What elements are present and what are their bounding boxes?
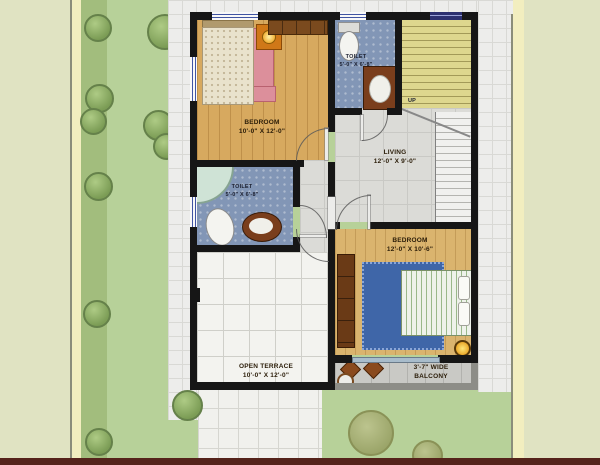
wall — [328, 162, 335, 197]
toilet2-label: TOILET 5'-0" X 6'-8" — [204, 184, 280, 200]
wall — [335, 108, 362, 115]
terrace-label: OPEN TERRACE 10'-0" X 12'-0" — [214, 362, 318, 381]
washbasin-icon — [369, 75, 391, 103]
living-name: LIVING — [345, 148, 445, 157]
balcony-name: BALCONY — [392, 372, 470, 381]
wall — [471, 12, 478, 363]
living-label: LIVING 12'-0" X 9'-0" — [345, 148, 445, 167]
terrace-name: OPEN TERRACE — [214, 362, 318, 371]
bush-icon — [84, 14, 112, 42]
bedroom1-name: BEDROOM — [210, 118, 314, 127]
patio-bottom — [198, 388, 322, 458]
door-leaf — [328, 197, 335, 229]
wall — [190, 160, 304, 167]
bush-icon — [85, 428, 113, 456]
toilet1-dims: 5'-0" X 6'-8" — [330, 62, 382, 70]
bush-icon — [83, 300, 111, 328]
bedroom1-dims: 10'-0" X 12'-0" — [210, 127, 314, 136]
window — [212, 12, 258, 20]
floor-plan-scene: BEDROOM 10'-0" X 12'-0" TOILET 5'-0" X 6… — [0, 0, 600, 465]
toilet1-label: TOILET 5'-0" X 6'-8" — [330, 54, 382, 70]
toilet2-dims: 5'-0" X 6'-8" — [204, 192, 280, 200]
balcony-parapet — [471, 363, 478, 390]
wall — [328, 355, 352, 363]
bedroom2-name: BEDROOM — [358, 236, 462, 245]
wall — [395, 12, 402, 115]
pillow — [458, 276, 470, 300]
toilet1-name: TOILET — [330, 54, 382, 62]
wall — [328, 229, 335, 390]
stairs-up-label: UP — [402, 98, 422, 106]
balcony-parapet — [335, 383, 478, 390]
bush-icon — [84, 172, 113, 201]
window — [430, 12, 462, 20]
wall — [190, 245, 300, 252]
wall — [438, 355, 478, 363]
wall — [293, 167, 300, 207]
bedroom1-label: BEDROOM 10'-0" X 12'-0" — [210, 118, 314, 137]
wardrobe — [268, 20, 328, 35]
wall — [190, 382, 335, 390]
washbasin-icon — [249, 218, 273, 234]
bedroom2-label: BEDROOM 12'-0" X 10'-6" — [358, 236, 462, 255]
wall — [370, 222, 471, 229]
window — [190, 57, 197, 101]
bottom-border-bar — [0, 458, 600, 465]
terrace-dims: 10'-0" X 12'-0" — [214, 371, 318, 380]
bed — [202, 27, 254, 105]
wardrobe — [337, 254, 355, 348]
balcony-label: 3'-7" WIDE BALCONY — [392, 363, 470, 382]
wall — [328, 12, 335, 132]
terrace-pillar — [190, 288, 200, 302]
bedroom2-dims: 12'-0" X 10'-6" — [358, 245, 462, 254]
toilet2-name: TOILET — [204, 184, 280, 192]
tree-icon — [172, 390, 203, 421]
pillow — [458, 302, 470, 326]
path-right — [478, 0, 511, 392]
shrub-icon — [348, 410, 394, 456]
right-boundary-strip — [511, 0, 524, 458]
floor-plan-building: BEDROOM 10'-0" X 12'-0" TOILET 5'-0" X 6… — [190, 12, 478, 390]
bush-icon — [80, 108, 107, 135]
window — [340, 12, 366, 20]
garden-strip — [81, 0, 107, 458]
balcony-dims: 3'-7" WIDE — [392, 363, 470, 372]
stairs-up-text: UP — [402, 98, 422, 106]
window — [190, 197, 197, 227]
living-dims: 12'-0" X 9'-0" — [345, 157, 445, 166]
